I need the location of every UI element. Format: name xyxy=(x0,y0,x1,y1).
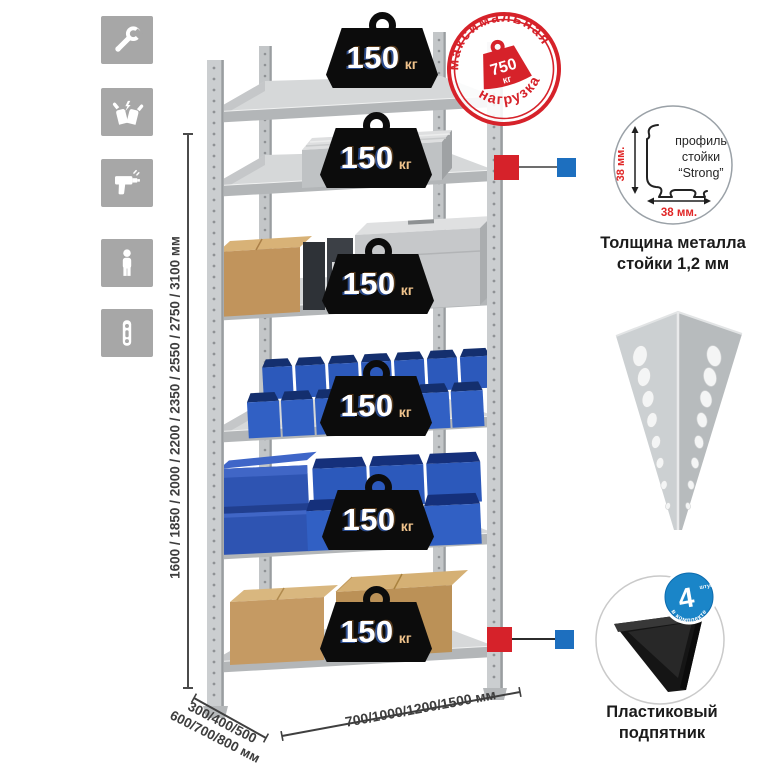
weight-unit: кг xyxy=(405,56,418,72)
foot-caption: Пластиковый подпятник xyxy=(592,702,732,745)
weight-value: 150 xyxy=(342,502,395,538)
callout-marker-foot xyxy=(555,630,574,649)
weight-value: 150 xyxy=(346,40,399,76)
weight-body: 150 кг xyxy=(326,28,438,88)
weight-body: 150 кг xyxy=(322,254,434,314)
weight-unit: кг xyxy=(399,156,412,172)
profile-caption-line1: Толщина металла xyxy=(594,233,752,254)
weight-unit: кг xyxy=(401,518,414,534)
callout-marker-post xyxy=(494,155,519,180)
profile-detail-circle: 38 мм. 38 мм. профиль стойки “Strong” xyxy=(608,103,738,233)
profile-label-2: стойки xyxy=(682,150,720,164)
shelf-load-weight-4: 150 кг xyxy=(320,360,432,436)
weight-value: 150 xyxy=(340,388,393,424)
profile-caption-line2: стойки 1,2 мм xyxy=(594,254,752,275)
foot-caption-line2: подпятник xyxy=(592,723,732,744)
profile-dim-vertical: 38 мм. xyxy=(615,147,627,182)
profile-dim-horizontal: 38 мм. xyxy=(661,207,697,219)
weight-unit: кг xyxy=(399,404,412,420)
shelf-load-weight-5: 150 кг xyxy=(322,474,434,550)
callout-line-bottom xyxy=(512,638,555,640)
weight-body: 150 кг xyxy=(322,490,434,550)
weight-unit: кг xyxy=(401,282,414,298)
callout-marker-profile xyxy=(557,158,576,177)
weight-body: 150 кг xyxy=(320,128,432,188)
max-load-stamp: максимальная нагрузка 750 кг xyxy=(445,10,563,128)
weight-body: 150 кг xyxy=(320,602,432,662)
shelf-load-weight-2: 150 кг xyxy=(320,112,432,188)
shelf-load-weight-6: 150 кг xyxy=(320,586,432,662)
weight-value: 150 xyxy=(342,266,395,302)
shelf-load-weight-3: 150 кг xyxy=(322,238,434,314)
profile-label-1: профиль xyxy=(675,134,727,148)
weight-body: 150 кг xyxy=(320,376,432,436)
profile-label-3: “Strong” xyxy=(678,166,723,180)
weight-unit: кг xyxy=(399,630,412,646)
profile-caption: Толщина металла стойки 1,2 мм xyxy=(594,233,752,276)
callout-marker-foot-post xyxy=(487,627,512,652)
weight-value: 150 xyxy=(340,140,393,176)
quantity-badge: 4 штуки в комплекте xyxy=(660,568,718,626)
corner-post-image xyxy=(600,298,748,548)
shelf-load-weight-1: 150 кг xyxy=(326,12,438,88)
product-infographic: 1600 / 1850 / 2000 / 2200 / 2350 / 2550 … xyxy=(0,0,765,765)
foot-caption-line1: Пластиковый xyxy=(592,702,732,723)
callout-line-top xyxy=(519,166,557,168)
weight-value: 150 xyxy=(340,614,393,650)
